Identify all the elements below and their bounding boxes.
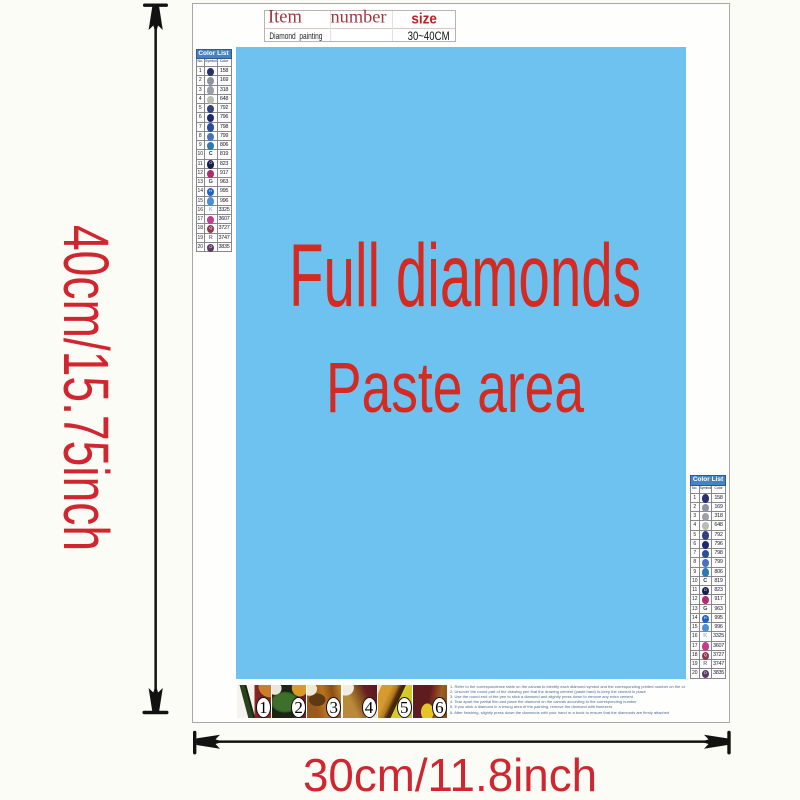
svg-text:Diamond painting: Diamond painting	[269, 31, 322, 42]
svg-text:Item: Item	[268, 8, 303, 28]
svg-text:40cm/15.75inch: 40cm/15.75inch	[50, 225, 122, 551]
svg-text:size: size	[411, 11, 437, 28]
svg-text:30cm/11.8inch: 30cm/11.8inch	[303, 749, 597, 800]
svg-text:30~40CM: 30~40CM	[408, 29, 450, 43]
svg-text:Full diamonds: Full diamonds	[289, 225, 641, 325]
svg-text:Paste area: Paste area	[326, 349, 584, 428]
svg-text:number: number	[331, 7, 387, 27]
